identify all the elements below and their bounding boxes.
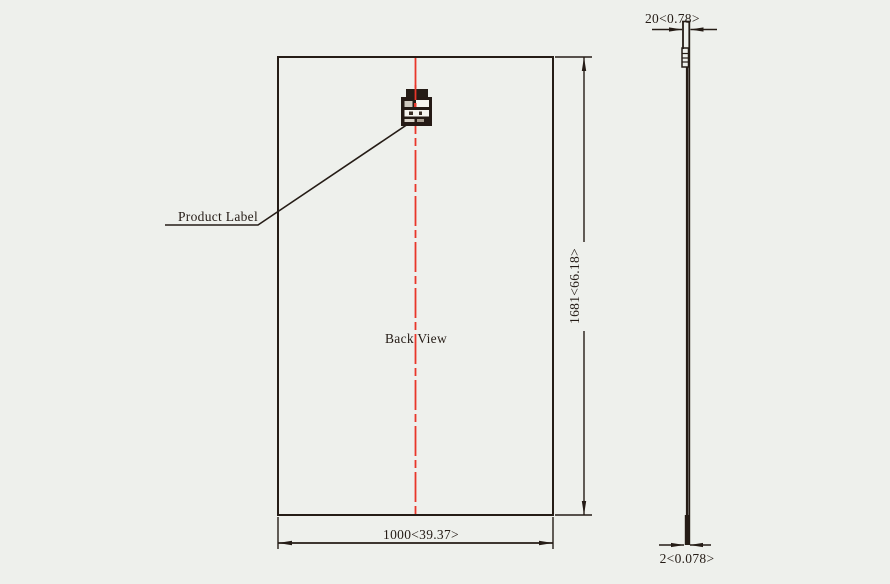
width-arrow-right-icon: [539, 541, 553, 545]
top-thickness-text: 20<0.78>: [645, 11, 700, 26]
top-thickness-arrow-right-icon: [669, 27, 683, 31]
height-arrow-down-icon: [582, 501, 586, 515]
side-bottom-rail: [685, 515, 689, 545]
product-label-text: Product Label: [178, 209, 258, 224]
height-dimension-text: 1681<66.18>: [567, 248, 582, 324]
top-thickness-dimension: 20<0.78>: [645, 11, 717, 32]
width-arrow-left-icon: [278, 541, 292, 545]
back-view-group: Product Label Back View: [165, 57, 553, 515]
label-detail-6: [405, 119, 415, 122]
label-detail-3: [405, 110, 430, 117]
back-view-label: Back View: [385, 331, 447, 346]
drawing-svg: Product Label Back View 1681<66.18>: [0, 0, 890, 584]
label-detail-2: [416, 100, 429, 107]
product-label-box: [401, 85, 432, 126]
bottom-thickness-arrow-left-icon: [690, 543, 704, 547]
height-dimension: 1681<66.18>: [555, 57, 592, 515]
label-detail-7: [417, 119, 424, 122]
bottom-thickness-text: 2<0.078>: [660, 551, 715, 566]
label-detail-5: [419, 112, 422, 116]
bottom-thickness-dimension: 2<0.078>: [659, 543, 714, 566]
side-junction-detail: [682, 48, 689, 67]
bottom-thickness-arrow-right-icon: [671, 543, 685, 547]
height-arrow-up-icon: [582, 57, 586, 71]
technical-drawing-canvas: Product Label Back View 1681<66.18>: [0, 0, 890, 584]
label-detail-1: [405, 101, 413, 107]
label-detail-4: [409, 112, 413, 116]
side-view-group: [682, 22, 690, 546]
top-thickness-arrow-left-icon: [690, 27, 704, 31]
width-dimension: 1000<39.37>: [278, 517, 553, 549]
label-cap: [406, 89, 428, 98]
width-dimension-text: 1000<39.37>: [383, 527, 459, 542]
label-red-mark: [414, 103, 417, 107]
